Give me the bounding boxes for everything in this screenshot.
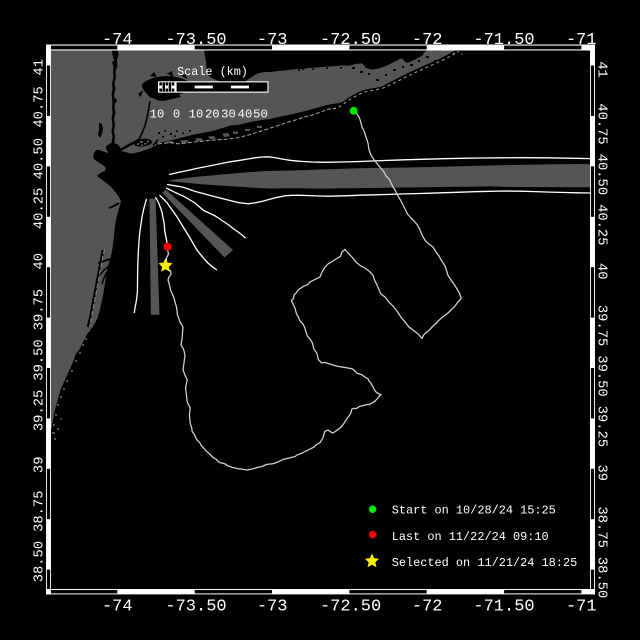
svg-text:40: 40 [33,253,48,270]
svg-text:-73: -73 [257,598,288,617]
svg-text:39: 39 [33,457,48,474]
svg-text:20: 20 [205,107,220,121]
svg-text:Start on 10/28/24 15:25: Start on 10/28/24 15:25 [392,504,556,518]
svg-text:10: 10 [189,107,204,121]
svg-text:38.75: 38.75 [594,506,609,547]
svg-text:-73.50: -73.50 [165,598,226,617]
svg-text:50: 50 [253,107,268,121]
svg-text:-72.50: -72.50 [320,31,381,50]
svg-text:Selected on 11/21/24 18:25: Selected on 11/21/24 18:25 [392,556,578,570]
svg-text:39.25: 39.25 [594,406,609,447]
svg-text:39.50: 39.50 [594,355,609,396]
svg-text:Scale (km): Scale (km) [177,65,248,79]
svg-text:-71: -71 [566,31,597,50]
svg-text:39: 39 [594,465,609,482]
svg-text:-71.50: -71.50 [473,598,534,617]
svg-text:0: 0 [173,107,180,121]
svg-text:40.75: 40.75 [33,86,48,127]
svg-text:-71.50: -71.50 [473,31,534,50]
svg-text:41: 41 [594,61,609,78]
svg-text:40: 40 [238,107,253,121]
svg-text:Last on 11/22/24 09:10: Last on 11/22/24 09:10 [392,530,549,544]
svg-text:-73: -73 [257,31,288,50]
svg-text:-72.50: -72.50 [320,598,381,617]
svg-text:38.50: 38.50 [594,557,609,598]
svg-text:40.50: 40.50 [594,154,609,195]
svg-text:-72: -72 [412,598,443,617]
svg-text:39.75: 39.75 [33,289,48,330]
svg-text:30: 30 [221,107,236,121]
svg-text:-74: -74 [102,598,133,617]
svg-text:39.50: 39.50 [33,339,48,380]
svg-text:40.75: 40.75 [594,103,609,144]
svg-text:41: 41 [33,59,48,76]
svg-text:40.25: 40.25 [33,188,48,229]
svg-text:38.75: 38.75 [33,490,48,531]
svg-text:40: 40 [594,263,609,280]
svg-text:38.50: 38.50 [33,541,48,582]
svg-text:39.25: 39.25 [33,390,48,431]
svg-text:-73.50: -73.50 [165,31,226,50]
svg-text:-74: -74 [102,31,133,50]
svg-text:10: 10 [150,107,165,121]
svg-text:39.75: 39.75 [594,305,609,346]
svg-text:-71: -71 [566,598,597,617]
svg-text:-72: -72 [412,31,443,50]
svg-text:40.25: 40.25 [594,204,609,245]
svg-text:40.50: 40.50 [33,138,48,179]
